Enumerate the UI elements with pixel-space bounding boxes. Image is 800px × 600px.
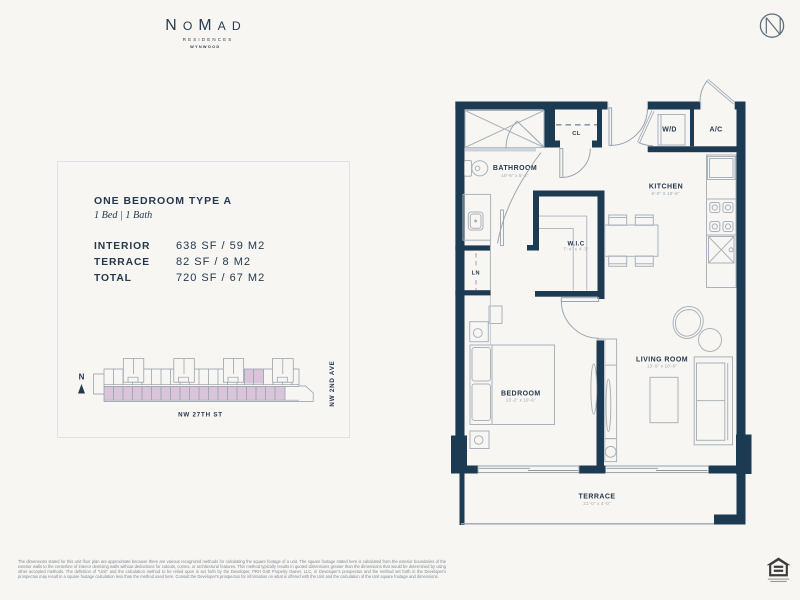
svg-text:TERRACE: TERRACE bbox=[579, 493, 616, 500]
svg-text:13'-9" x 10'-6": 13'-9" x 10'-6" bbox=[647, 364, 677, 369]
svg-text:BEDROOM: BEDROOM bbox=[501, 391, 541, 398]
svg-text:LIVING ROOM: LIVING ROOM bbox=[636, 357, 688, 364]
svg-text:21'-0" x 4'-0": 21'-0" x 4'-0" bbox=[583, 501, 611, 506]
svg-text:A/C: A/C bbox=[710, 127, 723, 134]
svg-text:KITCHEN: KITCHEN bbox=[649, 184, 683, 191]
svg-text:CL: CL bbox=[572, 131, 581, 137]
svg-text:13'-2" x 10'-6": 13'-2" x 10'-6" bbox=[506, 398, 536, 403]
svg-text:6'-0" X 10'-6": 6'-0" X 10'-6" bbox=[651, 191, 679, 196]
svg-text:W/D: W/D bbox=[662, 127, 677, 134]
svg-text:LN: LN bbox=[472, 271, 480, 277]
svg-text:7'-4" x 4'-3": 7'-4" x 4'-3" bbox=[563, 247, 589, 252]
svg-text:BATHROOM: BATHROOM bbox=[493, 165, 537, 172]
